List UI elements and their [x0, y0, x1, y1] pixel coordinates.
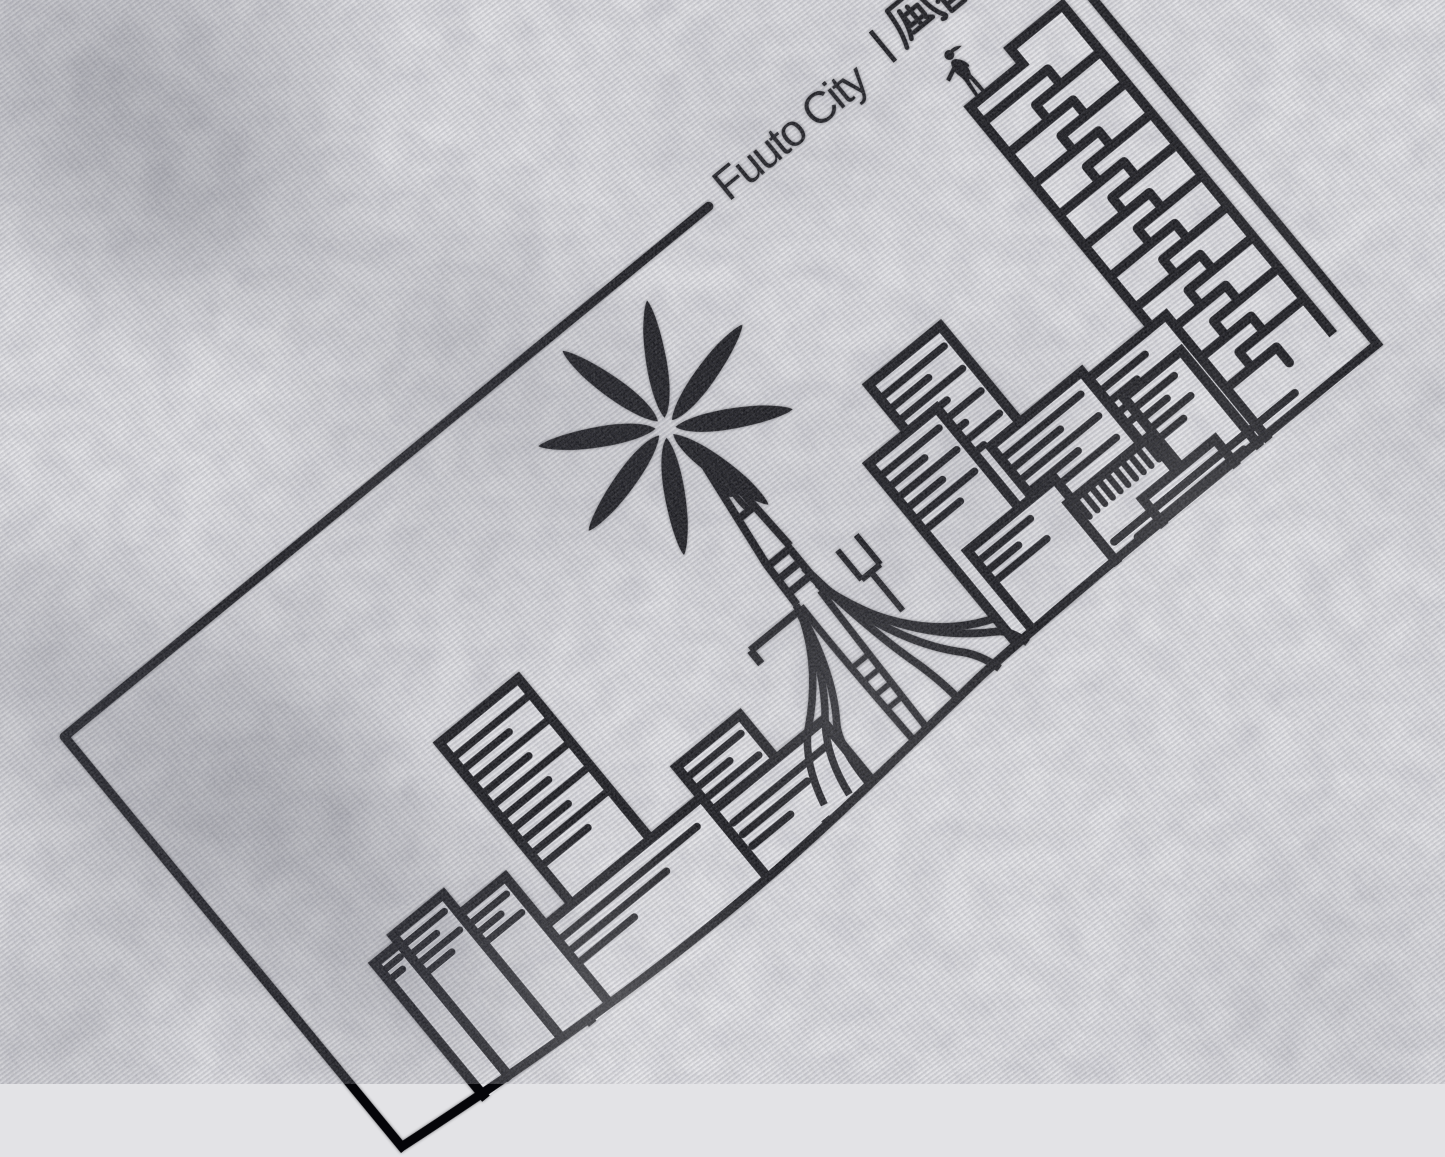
svg-text:Fuuto City: Fuuto City: [704, 54, 879, 210]
